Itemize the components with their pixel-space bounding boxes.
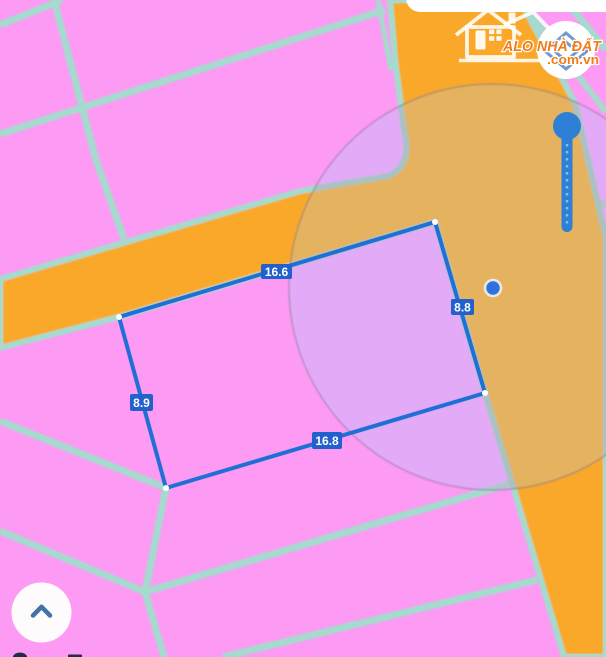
svg-text:.com.vn: .com.vn xyxy=(547,52,599,67)
svg-text:8.9: 8.9 xyxy=(133,396,150,410)
svg-text:16.6: 16.6 xyxy=(265,265,289,279)
svg-text:8.8: 8.8 xyxy=(454,301,471,315)
svg-text:16.8: 16.8 xyxy=(315,434,339,448)
